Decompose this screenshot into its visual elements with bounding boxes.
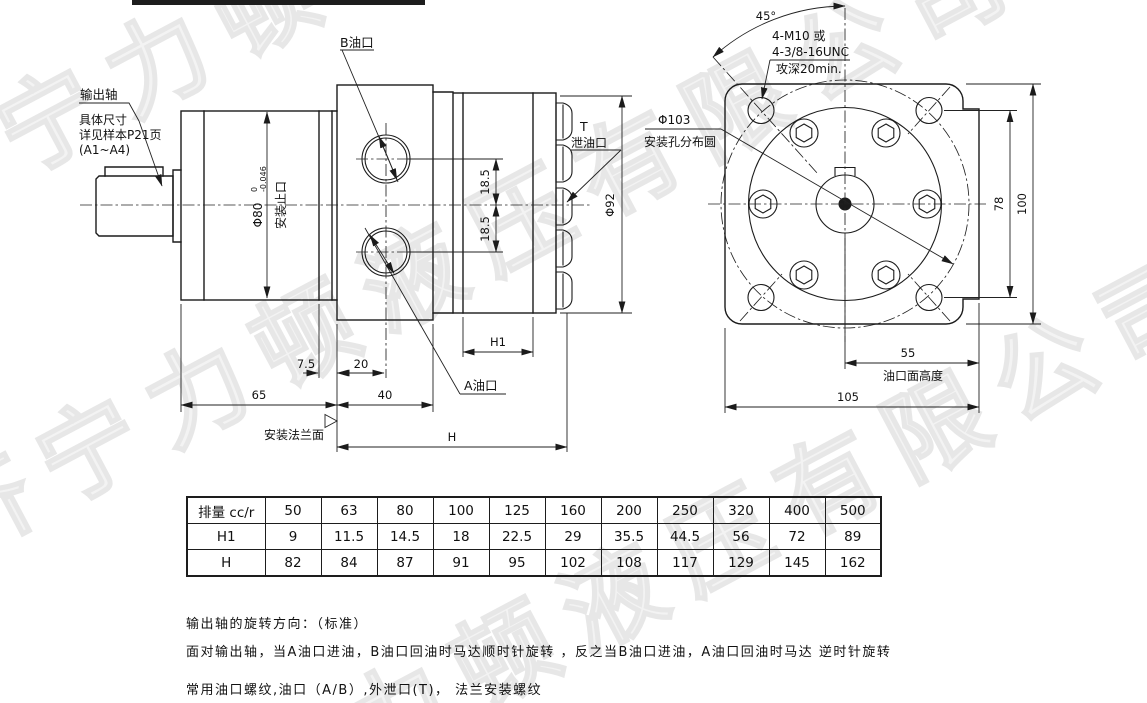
shaft-spec-line3: (A1~A4) xyxy=(79,143,130,157)
dim-horizontal: 55 油口面高度 105 xyxy=(725,238,979,413)
table-header-h1: H1 xyxy=(187,524,265,550)
dim-18-5-upper: 18.5 xyxy=(478,169,492,195)
table-cell: 320 xyxy=(713,497,769,524)
dim-dia80-tol-lower: -0.046 xyxy=(259,166,268,192)
table-cell: 95 xyxy=(489,550,545,577)
table-cell: 14.5 xyxy=(377,524,433,550)
thread-line2: 4-3/8-16UNC xyxy=(772,45,849,59)
table-cell: 72 xyxy=(769,524,825,550)
dim-lengths: 65 40 H xyxy=(181,304,567,452)
table-cell: 87 xyxy=(377,550,433,577)
flange-face-label: 安装法兰面 xyxy=(264,427,324,442)
side-view-outline xyxy=(96,85,572,320)
dim-105-label: 105 xyxy=(837,390,859,404)
table-row-displacement: 排量 cc/r 50 63 80 100 125 160 200 250 320… xyxy=(187,497,881,524)
dim-body-diameter: Φ92 xyxy=(560,96,632,313)
table-header-displacement: 排量 cc/r xyxy=(187,497,265,524)
table-cell: 9 xyxy=(265,524,321,550)
flange-face-callout: 安装法兰面 xyxy=(264,415,337,443)
port-b-label: B油口 xyxy=(340,35,374,50)
output-shaft-label: 输出轴 xyxy=(80,87,118,102)
dim-port-spacing: 18.5 18.5 xyxy=(408,159,503,252)
table-cell: 84 xyxy=(321,550,377,577)
note-port-threads: 常用油口螺纹,油口（A/B）,外泄口(T)， 法兰安装螺纹 xyxy=(186,679,542,698)
table-cell: 400 xyxy=(769,497,825,524)
shaft-spec-line2: 详见样本P21页 xyxy=(79,127,162,142)
spigot-label: 安装止口 xyxy=(273,181,288,229)
dim-h-label: H xyxy=(448,430,457,444)
note-rotation-title: 输出轴的旋转方向：（标准） xyxy=(186,613,368,632)
table-cell: 100 xyxy=(433,497,489,524)
dim-78-label: 78 xyxy=(992,197,1006,212)
side-view: Φ80 0 -0.046 安装止口 18.5 18.5 H1 xyxy=(79,35,632,452)
table-cell: 91 xyxy=(433,550,489,577)
dim-7-5-label: 7.5 xyxy=(297,357,315,371)
table-cell: 200 xyxy=(601,497,657,524)
table-cell: 22.5 xyxy=(489,524,545,550)
table-cell: 50 xyxy=(265,497,321,524)
table-cell: 125 xyxy=(489,497,545,524)
table-cell: 56 xyxy=(713,524,769,550)
dim-h1: H1 xyxy=(463,317,533,357)
table-cell: 82 xyxy=(265,550,321,577)
port-a-label: A油口 xyxy=(464,378,498,393)
table-cell: 108 xyxy=(601,550,657,577)
thread-line3: 攻深20min. xyxy=(776,62,842,76)
dim-45-label: 45° xyxy=(756,9,776,23)
table-row-h: H 82 84 87 91 95 102 108 117 129 145 162 xyxy=(187,550,881,577)
table-cell: 250 xyxy=(657,497,713,524)
table-cell: 162 xyxy=(825,550,881,577)
table-cell: 35.5 xyxy=(601,524,657,550)
shaft-spec-line1: 具体尺寸 xyxy=(79,113,127,127)
dim-55-label: 55 xyxy=(901,346,916,360)
bolt-circle-dia-label: Φ103 xyxy=(658,113,690,127)
dim-h1-label: H1 xyxy=(490,335,506,349)
dim-20-label: 20 xyxy=(354,357,369,371)
dimension-table: 排量 cc/r 50 63 80 100 125 160 200 250 320… xyxy=(186,496,882,577)
table-cell: 145 xyxy=(769,550,825,577)
technical-drawing: Φ80 0 -0.046 安装止口 18.5 18.5 H1 xyxy=(0,0,1147,492)
table-cell: 102 xyxy=(545,550,601,577)
port-face-height-label: 油口面高度 xyxy=(883,368,943,383)
side-centerlines xyxy=(80,123,592,378)
dim-65-label: 65 xyxy=(252,388,267,402)
table-cell: 500 xyxy=(825,497,881,524)
drain-t-label: T xyxy=(579,119,588,134)
table-cell: 117 xyxy=(657,550,713,577)
table-header-h: H xyxy=(187,550,265,577)
table-cell: 89 xyxy=(825,524,881,550)
bolt-circle-callout: Φ103 安装孔分布圆 xyxy=(644,113,953,264)
table-cell: 63 xyxy=(321,497,377,524)
bolt-circle-name-label: 安装孔分布圆 xyxy=(644,134,716,149)
drain-port-label: 泄油口 xyxy=(571,136,607,150)
drawing-page: 济宁力顿液压有限公司 济宁力顿液压有限公司 济宁力顿液压有限公司 济宁力顿液压有… xyxy=(0,0,1147,703)
table-cell: 80 xyxy=(377,497,433,524)
dim-dia80-tol-upper: 0 xyxy=(250,187,259,192)
thread-callout: 4-M10 或 4-3/8-16UNC 攻深20min. xyxy=(762,29,850,99)
table-cell: 129 xyxy=(713,550,769,577)
note-rotation-description: 面对输出轴，当A油口进油，B油口回油时马达顺时针旋转 ，反之当B油口进油，A油口… xyxy=(186,641,891,660)
dim-18-5-lower: 18.5 xyxy=(478,216,492,242)
dim-100-label: 100 xyxy=(1015,193,1029,215)
port-b-callout: B油口 xyxy=(340,35,398,182)
flange-view: 45° 4-M10 或 4-3/8-16UNC 攻深20min. Φ103 安装… xyxy=(644,6,1041,413)
thread-line1: 4-M10 或 xyxy=(772,29,825,43)
drain-port-callout: T 泄油口 xyxy=(567,119,621,202)
table-cell: 11.5 xyxy=(321,524,377,550)
dim-40-label: 40 xyxy=(378,388,393,402)
table-cell: 44.5 xyxy=(657,524,713,550)
dim-dia80-label: Φ80 xyxy=(251,203,265,228)
table-cell: 29 xyxy=(545,524,601,550)
output-shaft-callout: 输出轴 具体尺寸 详见样本P21页 (A1~A4) xyxy=(79,87,162,186)
table-row-h1: H1 9 11.5 14.5 18 22.5 29 35.5 44.5 56 7… xyxy=(187,524,881,550)
table-cell: 160 xyxy=(545,497,601,524)
dim-92-label: Φ92 xyxy=(603,193,617,217)
table-cell: 18 xyxy=(433,524,489,550)
